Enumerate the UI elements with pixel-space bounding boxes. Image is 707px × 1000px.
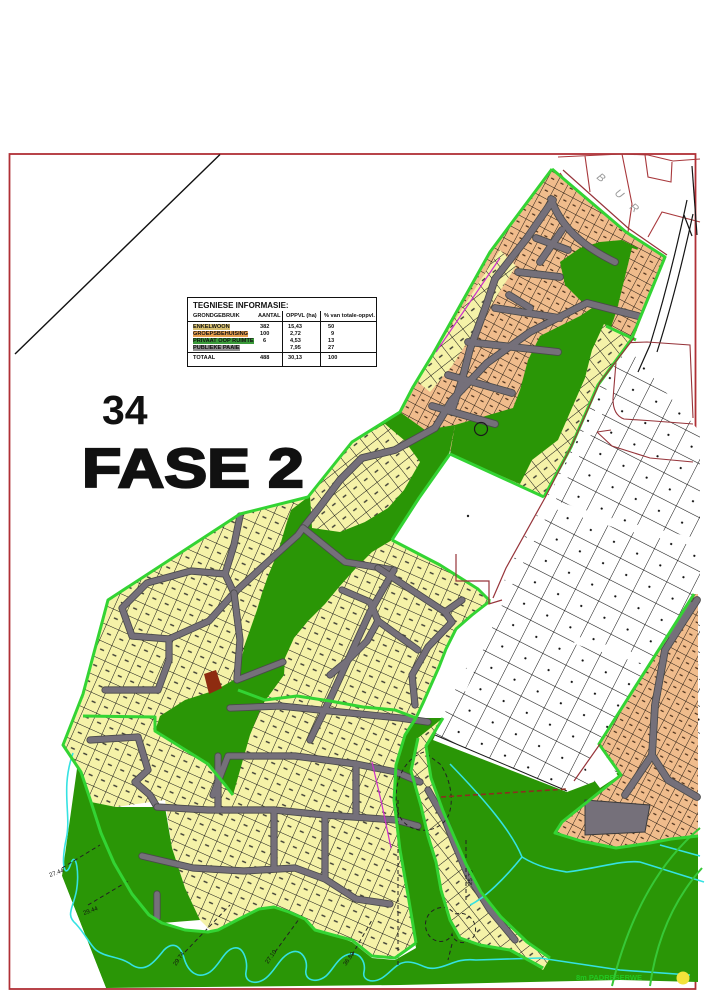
svg-text:8m PADRESERWE: 8m PADRESERWE: [576, 973, 642, 982]
